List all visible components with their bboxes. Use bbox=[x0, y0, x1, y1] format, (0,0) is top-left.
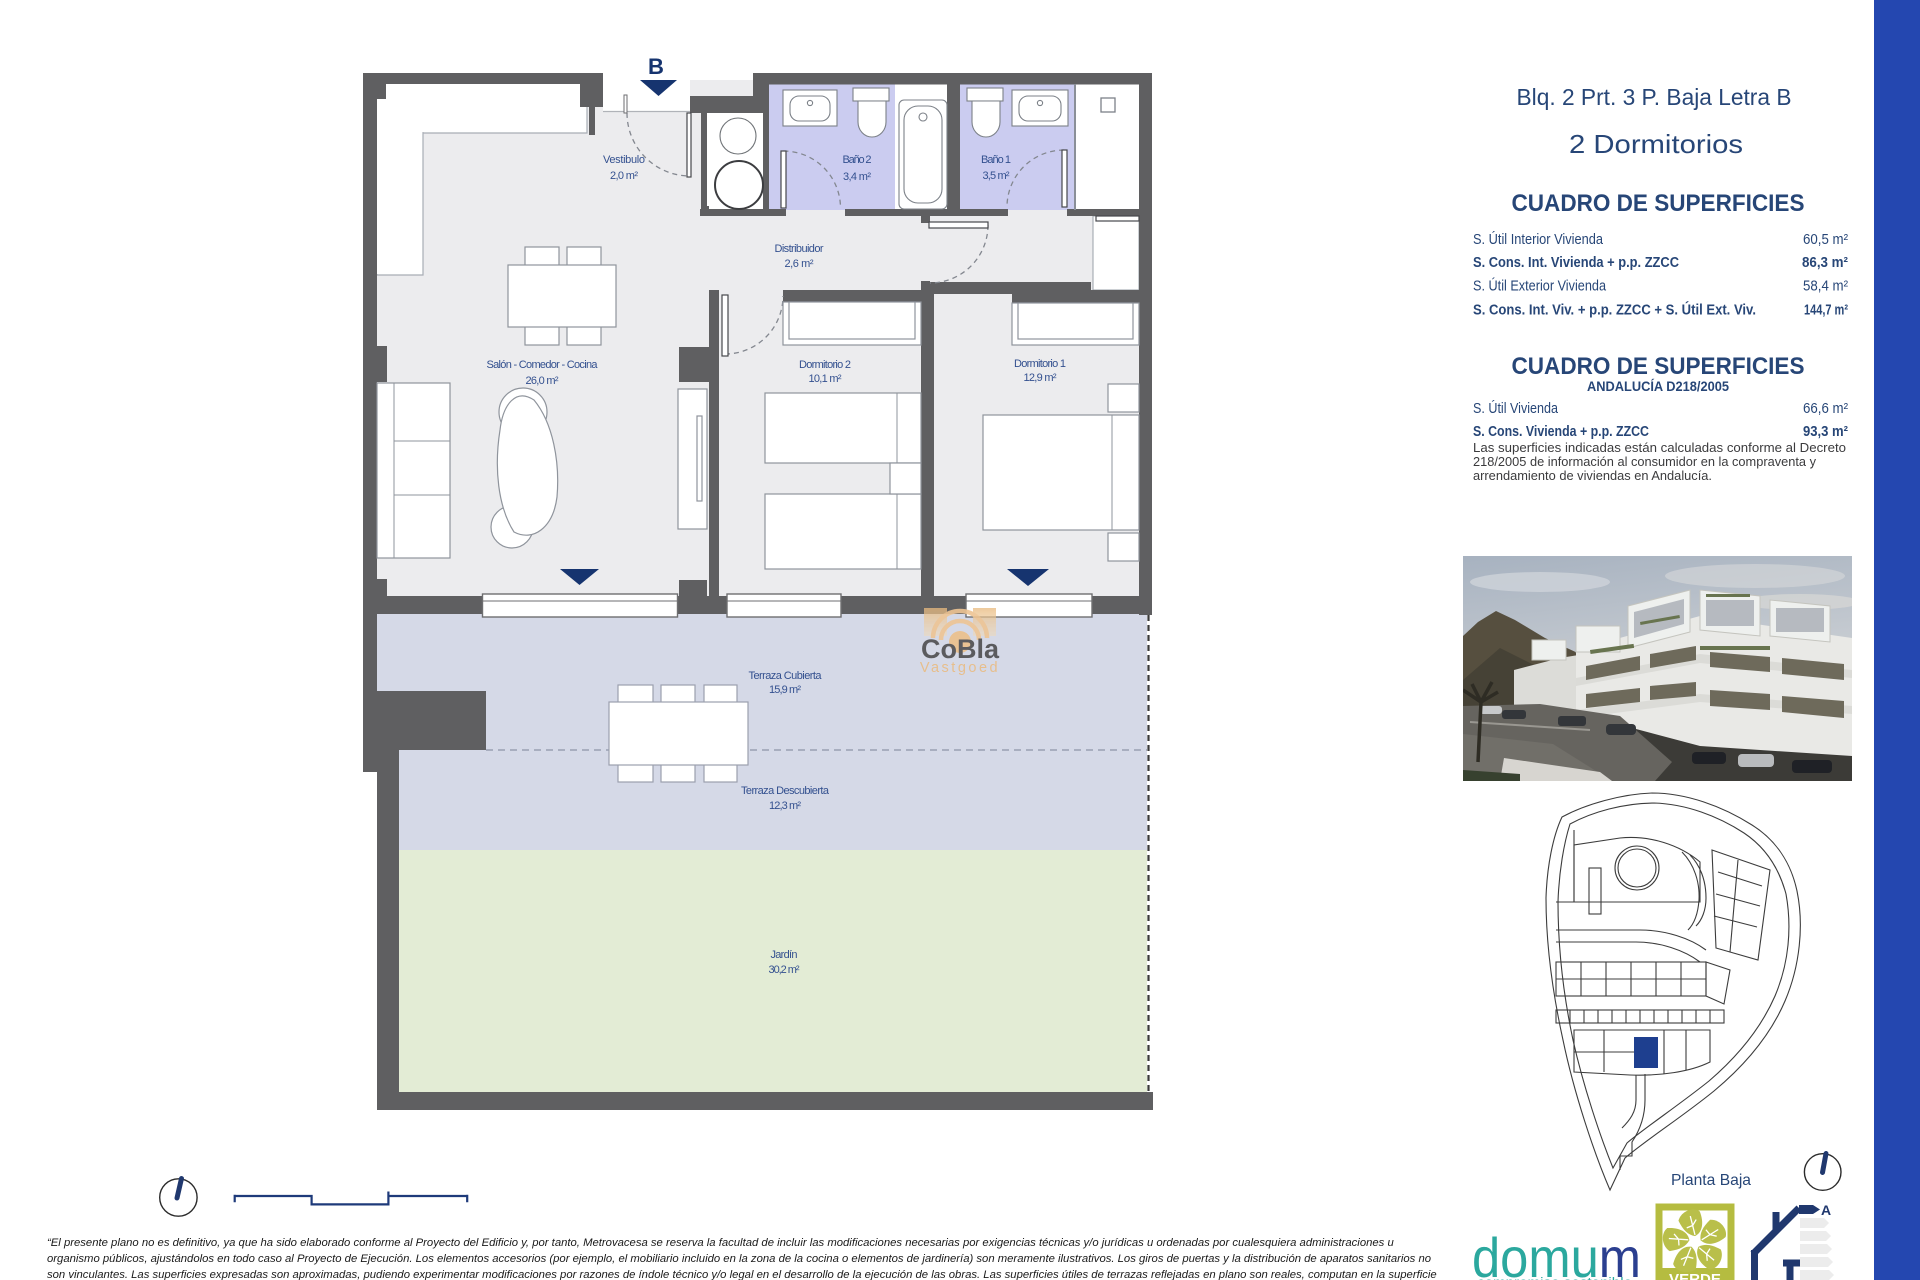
svg-text:10,1 m²: 10,1 m² bbox=[809, 373, 842, 385]
svg-text:Las superficies indicadas está: Las superficies indicadas están calculad… bbox=[1473, 440, 1846, 455]
svg-text:26,0 m²: 26,0 m² bbox=[526, 375, 559, 387]
svg-text:3,4 m²: 3,4 m² bbox=[843, 171, 871, 183]
svg-text:Dormitorio 1: Dormitorio 1 bbox=[1014, 358, 1066, 370]
svg-text:30,2 m²: 30,2 m² bbox=[769, 964, 800, 976]
svg-text:S. Cons. Vivienda + p.p. ZZCC: S. Cons. Vivienda + p.p. ZZCC bbox=[1473, 424, 1649, 440]
svg-text:218/2005 de información al con: 218/2005 de información al consumidor en… bbox=[1473, 454, 1816, 469]
svg-text:arrendamiento de viviendas en: arrendamiento de viviendas en Andalucía. bbox=[1473, 468, 1712, 483]
svg-text:Vastgoed: Vastgoed bbox=[920, 660, 1000, 676]
svg-text:15,9 m²: 15,9 m² bbox=[769, 684, 801, 696]
svg-text:CUADRO DE SUPERFICIES: CUADRO DE SUPERFICIES bbox=[1512, 353, 1805, 380]
svg-text:organismo públicos, ajustándol: organismo públicos, ajustándolos en todo… bbox=[47, 1253, 1431, 1265]
svg-text:Baño 1: Baño 1 bbox=[981, 154, 1011, 166]
svg-text:S. Útil Vivienda: S. Útil Vivienda bbox=[1473, 400, 1559, 417]
svg-text:S. Cons. Int. Viv. + p.p. ZZCC: S. Cons. Int. Viv. + p.p. ZZCC + S. Útil… bbox=[1473, 301, 1756, 319]
svg-text:ANDALUCÍA D218/2005: ANDALUCÍA D218/2005 bbox=[1587, 378, 1729, 394]
svg-text:144,7 m²: 144,7 m² bbox=[1804, 303, 1848, 319]
svg-text:domum: domum bbox=[1472, 1226, 1641, 1280]
svg-text:3,5 m²: 3,5 m² bbox=[983, 170, 1010, 182]
svg-text:Terraza Cubierta: Terraza Cubierta bbox=[749, 670, 823, 682]
svg-text:12,9 m²: 12,9 m² bbox=[1024, 372, 1057, 384]
svg-text:CUADRO DE SUPERFICIES: CUADRO DE SUPERFICIES bbox=[1512, 190, 1805, 217]
svg-text:Jardín: Jardín bbox=[771, 949, 798, 961]
svg-text:2,0 m²: 2,0 m² bbox=[610, 170, 638, 182]
svg-text:12,3 m²: 12,3 m² bbox=[769, 800, 801, 812]
svg-text:Terraza Descubierta: Terraza Descubierta bbox=[741, 785, 830, 797]
svg-text:Salón - Comedor - Cocina: Salón - Comedor - Cocina bbox=[487, 359, 599, 371]
svg-text:66,6 m²: 66,6 m² bbox=[1803, 401, 1848, 417]
svg-text:son vinculantes. Las superfici: son vinculantes. Las superficies expresa… bbox=[47, 1269, 1437, 1280]
svg-text:A: A bbox=[1821, 1202, 1831, 1218]
svg-text:Planta Baja: Planta Baja bbox=[1671, 1172, 1751, 1189]
svg-text:Distribuidor: Distribuidor bbox=[775, 243, 824, 255]
svg-text:compromiso sostenible: compromiso sostenible bbox=[1477, 1275, 1632, 1280]
svg-text:Baño 2: Baño 2 bbox=[843, 154, 872, 166]
svg-text:93,3 m²: 93,3 m² bbox=[1803, 424, 1848, 440]
svg-text:B: B bbox=[648, 54, 664, 79]
svg-text:S. Útil Exterior Vivienda: S. Útil Exterior Vivienda bbox=[1473, 278, 1607, 295]
svg-text:Dormitorio 2: Dormitorio 2 bbox=[799, 359, 851, 371]
svg-text:Vestibulo: Vestibulo bbox=[603, 154, 645, 166]
svg-text:Blq. 2 Prt. 3 P. Baja Letra B: Blq. 2 Prt. 3 P. Baja Letra B bbox=[1517, 84, 1792, 110]
svg-text:2,6 m²: 2,6 m² bbox=[785, 258, 814, 270]
svg-text:VERDE: VERDE bbox=[1669, 1271, 1721, 1280]
svg-text:2 Dormitorios: 2 Dormitorios bbox=[1569, 129, 1743, 159]
svg-text:58,4 m²: 58,4 m² bbox=[1803, 279, 1848, 295]
svg-text:“El presente plano no es defin: “El presente plano no es definitivo, ya … bbox=[47, 1237, 1394, 1249]
svg-text:S. Cons. Int. Vivienda + p.p.: S. Cons. Int. Vivienda + p.p. ZZCC bbox=[1473, 255, 1679, 271]
svg-text:86,3 m²: 86,3 m² bbox=[1802, 255, 1848, 271]
svg-text:60,5 m²: 60,5 m² bbox=[1803, 232, 1848, 248]
svg-text:S. Útil Interior Vivienda: S. Útil Interior Vivienda bbox=[1473, 231, 1604, 248]
